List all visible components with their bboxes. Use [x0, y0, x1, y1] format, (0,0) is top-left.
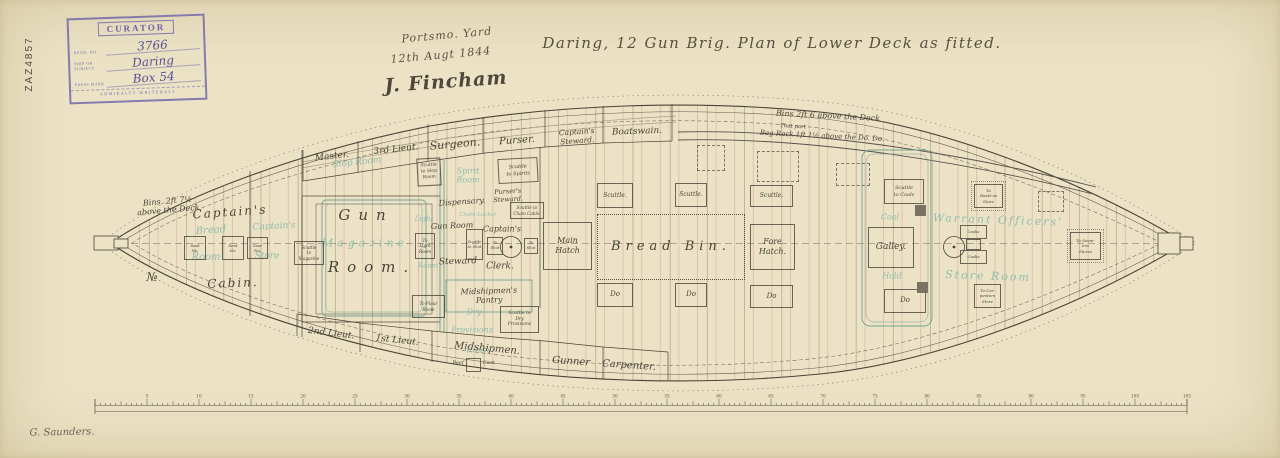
scale-ruler: 5101520253035404550556065707580859095100…: [95, 394, 1191, 415]
casks-box-upper: Casks: [960, 225, 987, 239]
svg-text:30: 30: [404, 394, 410, 399]
scuttle-to-spirits-box: Scuttle to Spirits: [497, 157, 538, 184]
bread-bin-box: Bread Bin.: [597, 214, 745, 280]
scuttle-to-shot-box: Scuttle to Shot: [466, 229, 483, 260]
to-carpenters-store-box: To Car- penters Store: [974, 284, 1001, 308]
to-flour-room-box: To Flour Room: [412, 295, 445, 318]
stamp-title: CURATOR: [98, 20, 174, 37]
ditto-box-1: Do: [597, 283, 633, 307]
svg-text:95: 95: [1080, 394, 1086, 399]
seat-box-1: Seat No.: [184, 236, 206, 260]
svg-text:25: 25: [352, 394, 358, 399]
svg-text:20: 20: [300, 394, 306, 399]
scuttle-to-chain-cable-box: Scuttle to Chain Cable.: [510, 202, 544, 219]
to-boatswains-store-box: To Boats'ns Store: [974, 184, 1003, 208]
scuttle-box-3: Scuttle.: [750, 185, 793, 207]
svg-text:75: 75: [872, 394, 878, 399]
svg-text:40: 40: [508, 394, 514, 399]
to-seamens-stores-box: To Seam- ens Stores: [1070, 232, 1101, 260]
svg-text:60: 60: [716, 394, 722, 399]
stamp-footer: ADMIRALTY WHITEHALL: [71, 86, 205, 98]
fore-hatch-box: Fore Hatch.: [750, 224, 795, 270]
ditto-box-2: Do: [675, 283, 707, 307]
casks-box-lower: Casks: [960, 250, 987, 264]
svg-text:80: 80: [924, 394, 930, 399]
scuttle-to-coals-box: Scuttle to Coals: [884, 179, 924, 204]
svg-text:15: 15: [248, 394, 254, 399]
svg-text:90: 90: [1028, 394, 1034, 399]
scuttle-to-dry-provisions-box: Scuttle to Dry Provisions: [500, 306, 539, 333]
to-light-room-box: To Light Room: [415, 233, 435, 259]
svg-text:10: 10: [196, 394, 202, 399]
deck-opening-dashed-3: [836, 163, 870, 186]
seat-box-3: Seat No.: [247, 237, 268, 259]
svg-text:35: 35: [456, 394, 462, 399]
svg-text:50: 50: [612, 394, 618, 399]
svg-text:100: 100: [1131, 394, 1139, 399]
main-hatch-box: Main Hatch: [543, 222, 592, 270]
svg-text:45: 45: [560, 394, 566, 399]
scuttle-to-magazine-box: Scuttle to Magazine: [294, 241, 324, 265]
to-shot-box-fore: To Shot: [524, 238, 538, 254]
svg-text:105: 105: [1183, 394, 1191, 399]
svg-text:55: 55: [664, 394, 670, 399]
scuttle-to-slop-room-box: Scuttle to Slop Room: [416, 157, 441, 186]
deck-opening-dashed-4: [1038, 191, 1064, 212]
deck-opening-dashed-2: [757, 151, 799, 182]
deck-opening-dashed-1: [697, 145, 725, 171]
svg-text:85: 85: [976, 394, 982, 399]
stamp-field-label: Ship or Subject: [74, 60, 106, 71]
galley-box: Galley.: [868, 227, 914, 268]
scuttle-box-2: Scuttle.: [675, 183, 707, 207]
curator-stamp: CURATOR Regd. No. 3766 Ship or Subject D…: [67, 14, 208, 105]
scuttle-box-1: Scuttle.: [597, 183, 633, 208]
ship-plan-sheet: 5101520253035404550556065707580859095100…: [0, 0, 1280, 458]
ditto-box-3: Do: [750, 285, 793, 308]
seat-box-2: Seat No.: [222, 236, 244, 260]
stamp-field-label: Press Mark: [75, 81, 107, 87]
to-shot-box-aft: To Shot: [487, 237, 503, 255]
stamp-field-value: Box 54: [106, 68, 201, 88]
svg-text:5: 5: [146, 394, 149, 399]
svg-text:70: 70: [820, 394, 826, 399]
galley-fitting-square-1: [915, 205, 926, 216]
beef-cask-box: [466, 358, 481, 372]
svg-text:65: 65: [768, 394, 774, 399]
casks-middle-box: [966, 239, 981, 250]
galley-fitting-square-2: [917, 282, 928, 293]
